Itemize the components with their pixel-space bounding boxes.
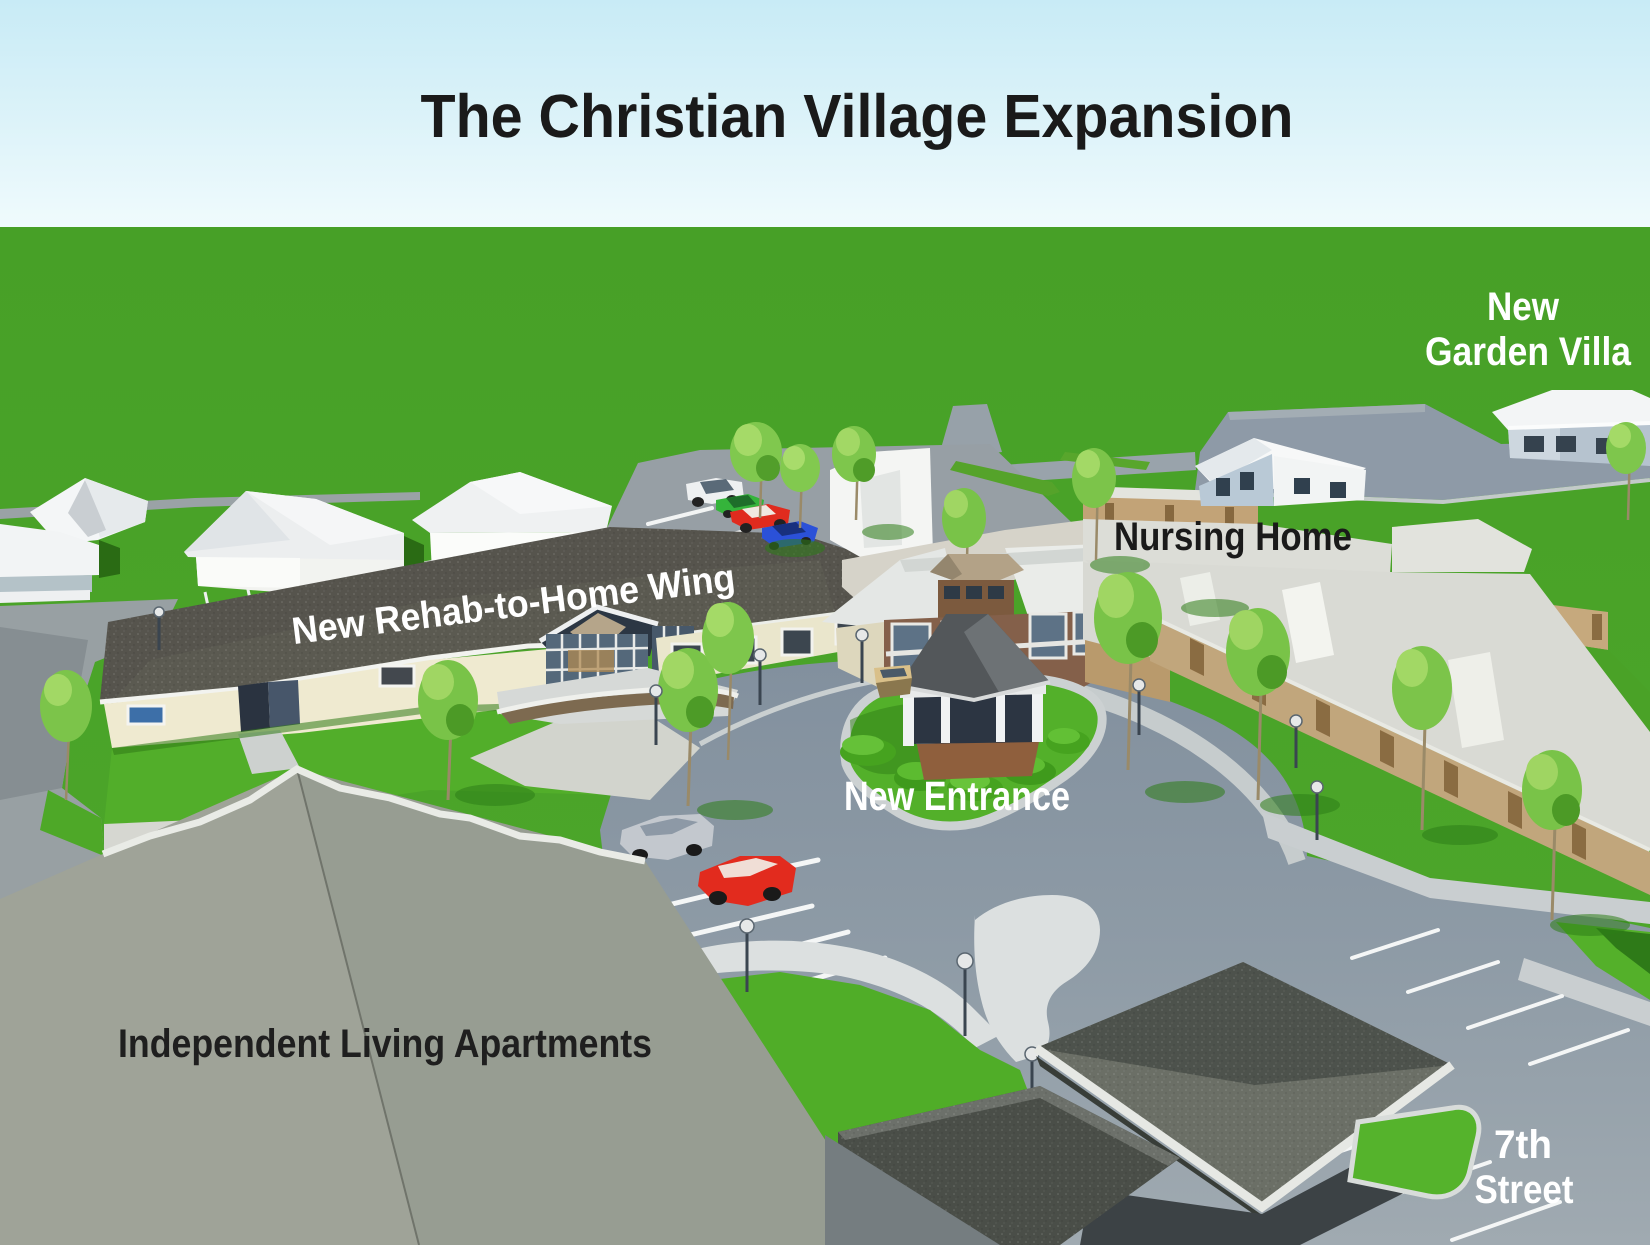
svg-text:Nursing Home: Nursing Home [1114,515,1352,559]
svg-text:7th: 7th [1494,1123,1552,1167]
svg-text:The Christian Village Expansio: The Christian Village Expansion [421,82,1294,150]
svg-text:New Entrance: New Entrance [844,773,1070,819]
svg-text:Garden Villa: Garden Villa [1425,330,1632,374]
svg-text:Street: Street [1475,1168,1574,1212]
svg-text:New: New [1487,285,1560,329]
svg-text:Independent Living Apartments: Independent Living Apartments [118,1022,652,1066]
